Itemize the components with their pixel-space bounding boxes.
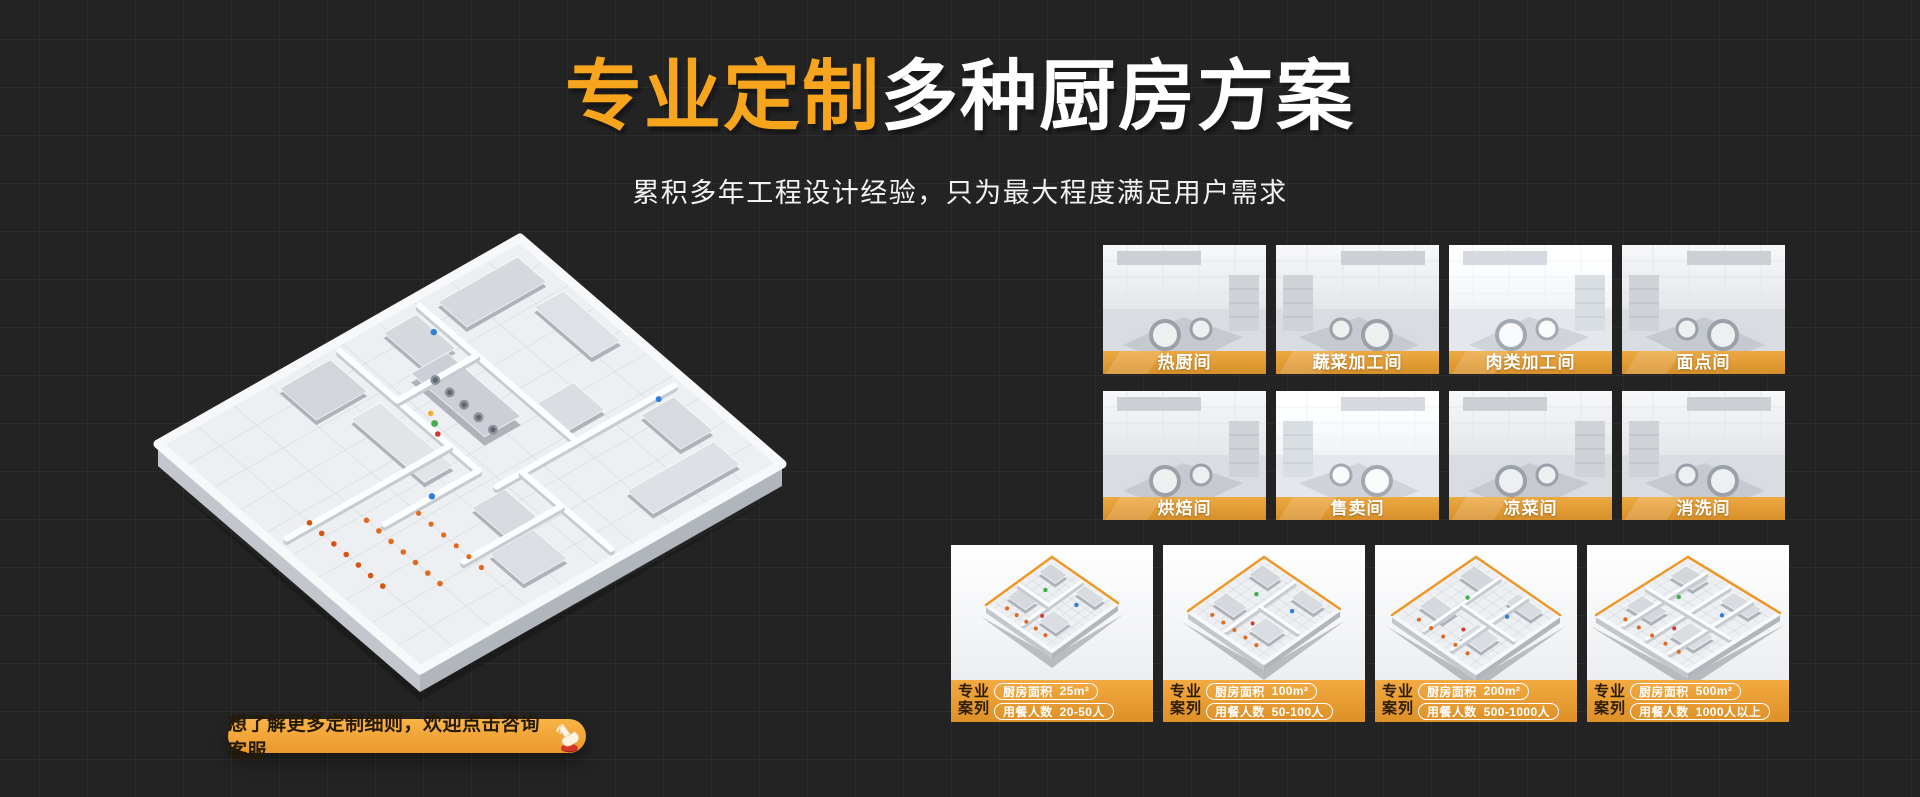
diners-value: 500-1000人 — [1484, 703, 1550, 720]
diners-pill: 用餐人数 20-50人 — [994, 703, 1114, 720]
case-studies-row: 专业 案列 厨房面积 25m² 用餐人数 20-50人 — [951, 545, 1789, 722]
page-title: 专业定制多种厨房方案 — [0, 55, 1920, 140]
case-details: 厨房面积 100m² 用餐人数 50-100人 — [1206, 683, 1333, 720]
room-tile-cold-dishes[interactable]: 凉菜间 — [1449, 391, 1612, 520]
case-footer: 专业 案列 厨房面积 200m² 用餐人数 500-1000人 — [1375, 680, 1577, 722]
case-details: 厨房面积 25m² 用餐人数 20-50人 — [994, 683, 1114, 720]
hero-banner: 专业定制多种厨房方案 累积多年工程设计经验，只为最大程度满足用户需求 热厨间 蔬… — [0, 0, 1920, 797]
kitchen-area-pill: 厨房面积 200m² — [1418, 683, 1529, 700]
case-render — [1587, 545, 1789, 680]
case-tile-2[interactable]: 专业 案列 厨房面积 200m² 用餐人数 500-1000人 — [1375, 545, 1577, 722]
area-value: 100m² — [1272, 684, 1309, 698]
page-title-highlight: 专业定制 — [565, 54, 881, 140]
case-tile-0[interactable]: 专业 案列 厨房面积 25m² 用餐人数 20-50人 — [951, 545, 1153, 722]
room-tile-vegetable-processing[interactable]: 蔬菜加工间 — [1276, 245, 1439, 374]
case-badge: 专业 案列 — [1170, 684, 1202, 718]
case-badge: 专业 案列 — [1382, 684, 1414, 718]
case-badge-top: 专业 — [958, 684, 990, 701]
case-badge-top: 专业 — [1594, 684, 1626, 701]
room-label: 肉类加工间 — [1449, 351, 1612, 374]
case-badge-top: 专业 — [1170, 684, 1202, 701]
room-types-grid: 热厨间 蔬菜加工间 肉类加工间 面点间 烘焙间 售卖间 凉菜间 消洗间 — [1103, 245, 1785, 520]
area-label: 厨房面积 — [1427, 683, 1477, 700]
case-badge-bottom: 案列 — [958, 701, 990, 718]
case-badge-bottom: 案列 — [1594, 701, 1626, 718]
case-badge: 专业 案列 — [1594, 684, 1626, 718]
area-value: 500m² — [1696, 684, 1733, 698]
diners-label: 用餐人数 — [1003, 703, 1053, 720]
diners-label: 用餐人数 — [1215, 703, 1265, 720]
kitchen-area-pill: 厨房面积 500m² — [1630, 683, 1741, 700]
case-render — [1163, 545, 1365, 680]
area-label: 厨房面积 — [1215, 683, 1265, 700]
room-label: 烘焙间 — [1103, 497, 1266, 520]
room-label: 面点间 — [1622, 351, 1785, 374]
consult-service-label: 想了解更多定制细则，欢迎点击咨询客服 — [228, 709, 548, 763]
room-label: 热厨间 — [1103, 351, 1266, 374]
case-footer: 专业 案列 厨房面积 25m² 用餐人数 20-50人 — [951, 680, 1153, 722]
room-tile-baking[interactable]: 烘焙间 — [1103, 391, 1266, 520]
diners-pill: 用餐人数 1000人以上 — [1630, 703, 1770, 720]
kitchen-area-pill: 厨房面积 25m² — [994, 683, 1098, 700]
area-value: 25m² — [1060, 684, 1090, 698]
room-label: 售卖间 — [1276, 497, 1439, 520]
room-label: 蔬菜加工间 — [1276, 351, 1439, 374]
area-label: 厨房面积 — [1639, 683, 1689, 700]
page-title-rest: 多种厨房方案 — [881, 54, 1355, 140]
diners-pill: 用餐人数 500-1000人 — [1418, 703, 1559, 720]
case-details: 厨房面积 500m² 用餐人数 1000人以上 — [1630, 683, 1770, 720]
kitchen-area-pill: 厨房面积 100m² — [1206, 683, 1317, 700]
room-tile-pastry[interactable]: 面点间 — [1622, 245, 1785, 374]
area-label: 厨房面积 — [1003, 683, 1053, 700]
room-label: 消洗间 — [1622, 497, 1785, 520]
diners-label: 用餐人数 — [1427, 703, 1477, 720]
room-tile-sales[interactable]: 售卖间 — [1276, 391, 1439, 520]
case-badge: 专业 案列 — [958, 684, 990, 718]
room-tile-hot-kitchen[interactable]: 热厨间 — [1103, 245, 1266, 374]
case-badge-bottom: 案列 — [1170, 701, 1202, 718]
case-footer: 专业 案列 厨房面积 500m² 用餐人数 1000人以上 — [1587, 680, 1789, 722]
diners-label: 用餐人数 — [1639, 703, 1689, 720]
room-label: 凉菜间 — [1449, 497, 1612, 520]
case-footer: 专业 案列 厨房面积 100m² 用餐人数 50-100人 — [1163, 680, 1365, 722]
consult-service-button[interactable]: 想了解更多定制细则，欢迎点击咨询客服 — [228, 719, 586, 753]
room-tile-meat-processing[interactable]: 肉类加工间 — [1449, 245, 1612, 374]
floorplan-3d-illustration — [128, 198, 804, 732]
area-value: 200m² — [1484, 684, 1521, 698]
kitchen-floorplan-render — [128, 198, 804, 732]
case-render — [951, 545, 1153, 680]
diners-pill: 用餐人数 50-100人 — [1206, 703, 1333, 720]
case-badge-top: 专业 — [1382, 684, 1414, 701]
diners-value: 20-50人 — [1060, 703, 1105, 720]
diners-value: 1000人以上 — [1696, 703, 1762, 720]
room-tile-dishwashing[interactable]: 消洗间 — [1622, 391, 1785, 520]
case-tile-1[interactable]: 专业 案列 厨房面积 100m² 用餐人数 50-100人 — [1163, 545, 1365, 722]
tap-hand-icon — [551, 722, 586, 753]
case-tile-3[interactable]: 专业 案列 厨房面积 500m² 用餐人数 1000人以上 — [1587, 545, 1789, 722]
case-badge-bottom: 案列 — [1382, 701, 1414, 718]
diners-value: 50-100人 — [1272, 703, 1324, 720]
case-render — [1375, 545, 1577, 680]
case-details: 厨房面积 200m² 用餐人数 500-1000人 — [1418, 683, 1559, 720]
